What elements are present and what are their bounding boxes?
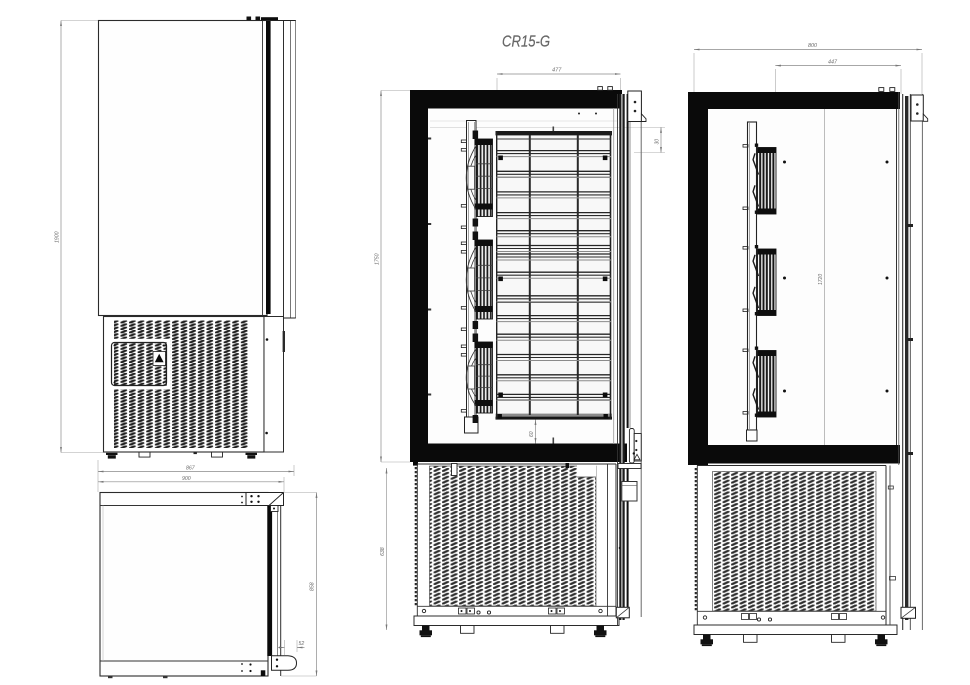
svg-text:60: 60	[529, 431, 535, 437]
svg-text:1750: 1750	[375, 253, 381, 265]
svg-text:867: 867	[186, 466, 196, 472]
svg-text:900: 900	[182, 476, 191, 482]
svg-text:CR15-G: CR15-G	[502, 33, 550, 50]
svg-text:447: 447	[828, 59, 838, 65]
svg-text:30: 30	[655, 139, 661, 145]
svg-text:477: 477	[552, 68, 562, 74]
svg-text:52: 52	[299, 641, 305, 647]
svg-text:1720: 1720	[818, 274, 824, 285]
svg-text:638: 638	[380, 547, 386, 556]
svg-text:1900: 1900	[55, 231, 61, 243]
svg-text:800: 800	[808, 43, 817, 49]
svg-text:858: 858	[310, 582, 316, 591]
